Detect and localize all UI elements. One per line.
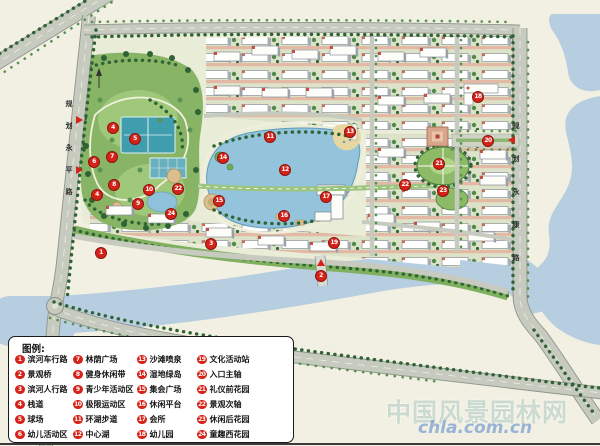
legend-number-badge: 4 bbox=[15, 400, 25, 410]
legend-item-label: 景观桥 bbox=[28, 369, 52, 380]
legend-item-label: 球场 bbox=[28, 414, 44, 425]
legend-item-label: 林荫广场 bbox=[86, 354, 118, 365]
wetland-island bbox=[215, 152, 225, 162]
legend-item-label: 中心湖 bbox=[86, 429, 110, 440]
legend-number-badge: 12 bbox=[73, 430, 83, 440]
legend-number-badge: 13 bbox=[137, 355, 147, 365]
legend-item-label: 青少年活动区 bbox=[86, 384, 134, 395]
legend-item: 12中心湖 bbox=[73, 429, 110, 440]
legend-item: 9青少年活动区 bbox=[73, 384, 134, 395]
legend-item: 19文化活动站 bbox=[197, 354, 250, 365]
lake-bridge bbox=[352, 124, 357, 140]
legend-number-badge: 14 bbox=[137, 370, 147, 380]
legend-item-label: 滨河人行路 bbox=[28, 384, 68, 395]
legend-number-badge: 6 bbox=[15, 430, 25, 440]
legend-item-label: 休闲后花园 bbox=[210, 414, 250, 425]
legend-item: 2景观桥 bbox=[15, 369, 52, 380]
legend-item: 16休闲平台 bbox=[137, 399, 182, 410]
legend-item: 11环湖步道 bbox=[73, 414, 118, 425]
legend-item: 18幼儿园 bbox=[137, 429, 174, 440]
legend-item-label: 栈道 bbox=[28, 399, 44, 410]
legend-number-badge: 17 bbox=[137, 415, 147, 425]
legend-item: 15集会广场 bbox=[137, 384, 182, 395]
legend-item: 6幼儿活动区 bbox=[15, 429, 68, 440]
legend-item-label: 幼儿园 bbox=[150, 429, 174, 440]
legend-number-badge: 20 bbox=[197, 370, 207, 380]
legend-item-label: 集会广场 bbox=[150, 384, 182, 395]
legend-item-label: 极限运动区 bbox=[86, 399, 126, 410]
park-pond bbox=[147, 192, 177, 212]
legend-item-label: 环湖步道 bbox=[86, 414, 118, 425]
site-plan: 1234456789101112131415161718192021222223… bbox=[0, 0, 600, 446]
legend-item: 8健身休闲带 bbox=[73, 369, 126, 380]
legend-title: 图例: bbox=[22, 341, 45, 355]
legend-panel: 图例: 1滨河车行路2景观桥3滨河人行路4栈道5球场6幼儿活动区7林荫广场8健身… bbox=[8, 336, 294, 443]
rear-leisure-garden bbox=[436, 188, 468, 210]
legend-number-badge: 19 bbox=[197, 355, 207, 365]
legend-number-badge: 11 bbox=[73, 415, 83, 425]
legend-number-badge: 10 bbox=[73, 400, 83, 410]
legend-item: 1滨河车行路 bbox=[15, 354, 68, 365]
legend-item: 5球场 bbox=[15, 414, 44, 425]
legend-item-label: 滨河车行路 bbox=[28, 354, 68, 365]
legend-item-label: 沙滩喷泉 bbox=[150, 354, 182, 365]
legend-item: 21礼仪前花园 bbox=[197, 384, 250, 395]
legend-number-badge: 16 bbox=[137, 400, 147, 410]
legend-number-badge: 23 bbox=[197, 415, 207, 425]
legend-item: 3滨河人行路 bbox=[15, 384, 68, 395]
legend-item-label: 文化活动站 bbox=[210, 354, 250, 365]
park-plaza bbox=[167, 169, 181, 183]
legend-item: 13沙滩喷泉 bbox=[137, 354, 182, 365]
legend-item: 14湿地绿岛 bbox=[137, 369, 182, 380]
legend-item: 22景观次轴 bbox=[197, 399, 242, 410]
legend-item-label: 湿地绿岛 bbox=[150, 369, 182, 380]
legend-item-label: 会所 bbox=[150, 414, 166, 425]
legend-item: 24童趣西花园 bbox=[197, 429, 250, 440]
legend-item-label: 礼仪前花园 bbox=[210, 384, 250, 395]
legend-number-badge: 7 bbox=[73, 355, 83, 365]
legend-item-label: 休闲平台 bbox=[150, 399, 182, 410]
legend-item: 17会所 bbox=[137, 414, 166, 425]
legend-number-badge: 18 bbox=[137, 430, 147, 440]
legend-number-badge: 22 bbox=[197, 400, 207, 410]
legend-item: 20入口主轴 bbox=[197, 369, 242, 380]
legend-number-badge: 24 bbox=[197, 430, 207, 440]
legend-number-badge: 8 bbox=[73, 370, 83, 380]
legend-item-label: 景观次轴 bbox=[210, 399, 242, 410]
legend-number-badge: 2 bbox=[15, 370, 25, 380]
legend-number-badge: 21 bbox=[197, 385, 207, 395]
legend-number-badge: 9 bbox=[73, 385, 83, 395]
legend-item: 23休闲后花园 bbox=[197, 414, 250, 425]
watermark-url: chla.com.cn bbox=[418, 418, 532, 438]
legend-item: 10极限运动区 bbox=[73, 399, 126, 410]
legend-item-label: 入口主轴 bbox=[210, 369, 242, 380]
legend-number-badge: 5 bbox=[15, 415, 25, 425]
legend-item-label: 幼儿活动区 bbox=[28, 429, 68, 440]
leisure-platform bbox=[276, 214, 286, 220]
legend-number-badge: 1 bbox=[15, 355, 25, 365]
legend-item: 4栈道 bbox=[15, 399, 44, 410]
legend-number-badge: 3 bbox=[15, 385, 25, 395]
legend-item-label: 健身休闲带 bbox=[86, 369, 126, 380]
legend-number-badge: 15 bbox=[137, 385, 147, 395]
legend-item-label: 童趣西花园 bbox=[210, 429, 250, 440]
legend-item: 7林荫广场 bbox=[73, 354, 118, 365]
bottom-border-line bbox=[0, 443, 600, 445]
west-garden-park bbox=[79, 51, 203, 231]
